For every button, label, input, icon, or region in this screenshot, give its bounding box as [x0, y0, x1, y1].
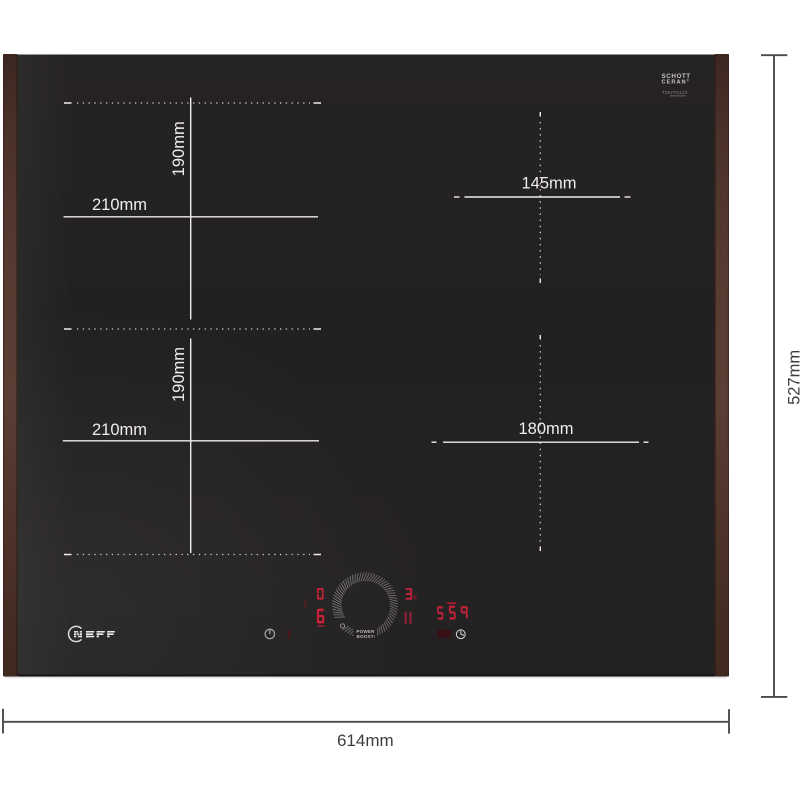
svg-text:180mm: 180mm	[518, 420, 573, 438]
svg-text:190mm: 190mm	[170, 121, 188, 176]
svg-text:190mm: 190mm	[170, 347, 188, 402]
svg-text:527mm: 527mm	[785, 350, 800, 405]
svg-text:T36YF51C0: T36YF51C0	[662, 90, 688, 95]
svg-text:614mm: 614mm	[337, 731, 394, 750]
svg-text:CERAN: CERAN	[662, 80, 687, 86]
svg-text:210mm: 210mm	[92, 421, 147, 439]
svg-text:210mm: 210mm	[92, 196, 147, 214]
svg-text:BOOST›: BOOST›	[356, 634, 375, 639]
svg-text:145mm: 145mm	[521, 175, 576, 193]
